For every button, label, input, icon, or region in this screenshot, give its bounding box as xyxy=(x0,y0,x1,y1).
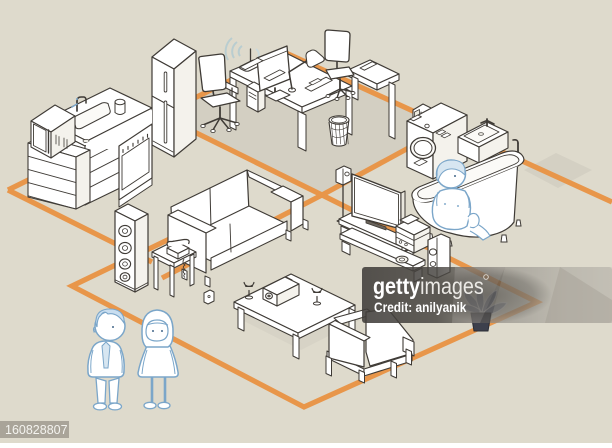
svg-text:gettyimages: gettyimages xyxy=(373,272,484,299)
svg-text:Credit: anilyanik: Credit: anilyanik xyxy=(374,299,467,315)
svg-text:160828807: 160828807 xyxy=(5,423,68,437)
